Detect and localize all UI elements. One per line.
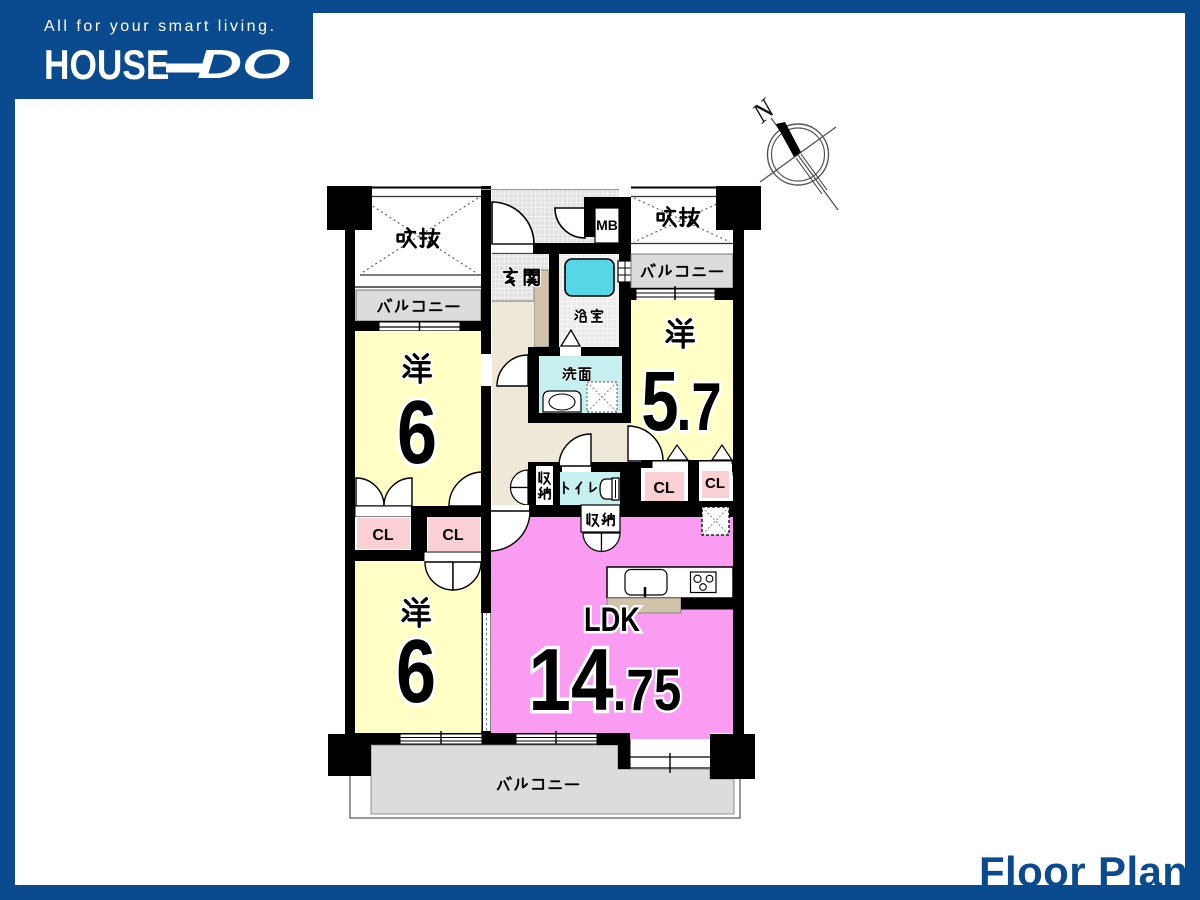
- svg-text:6: 6: [396, 621, 436, 721]
- svg-text:DO: DO: [197, 41, 290, 87]
- svg-text:CL: CL: [372, 527, 394, 544]
- svg-text:.75: .75: [613, 658, 682, 723]
- svg-text:CL: CL: [442, 527, 464, 544]
- svg-text:All for your smart living.: All for your smart living.: [44, 18, 277, 35]
- svg-text:.7: .7: [676, 369, 721, 445]
- svg-text:CL: CL: [653, 480, 675, 497]
- svg-text:CL: CL: [705, 475, 725, 492]
- svg-text:HOUSE: HOUSE: [44, 42, 169, 89]
- svg-text:6: 6: [397, 382, 437, 482]
- svg-text:14: 14: [528, 631, 613, 729]
- svg-text:MB: MB: [596, 217, 618, 233]
- svg-text:Floor Plan: Floor Plan: [979, 848, 1188, 895]
